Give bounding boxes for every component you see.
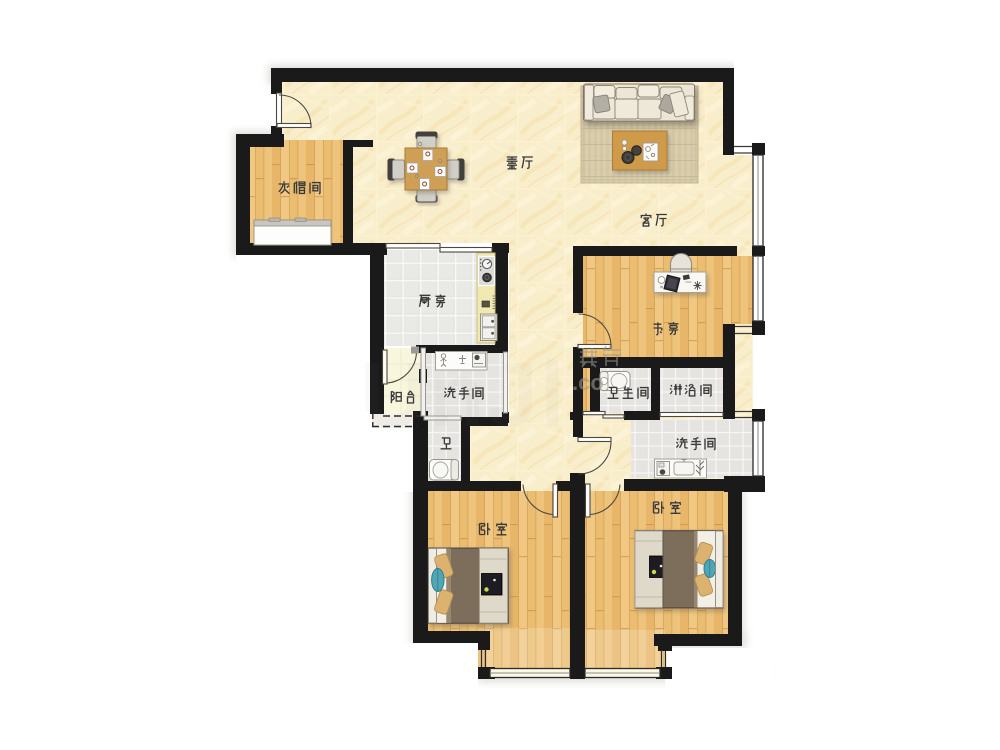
svg-text:UnJl: UnJl <box>360 344 567 446</box>
svg-text:.co: .co <box>572 370 604 395</box>
